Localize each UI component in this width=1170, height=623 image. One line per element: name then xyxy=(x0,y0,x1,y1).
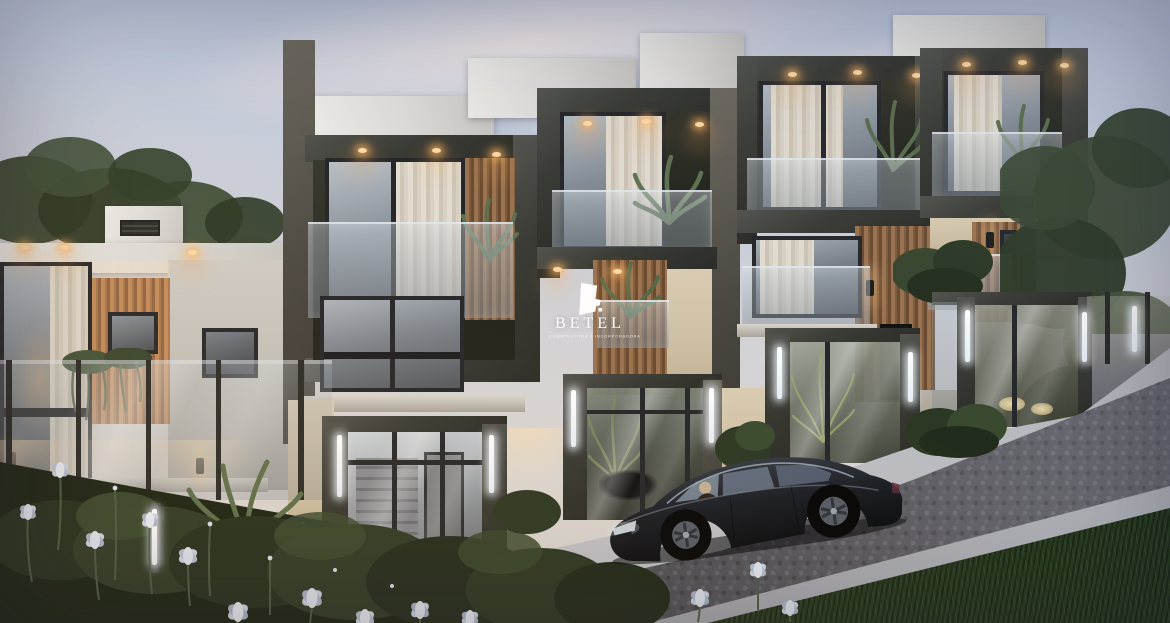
downlight xyxy=(20,245,29,250)
downlight xyxy=(788,72,797,77)
shrub-right-of-gate-3 xyxy=(903,396,1011,458)
led-strip xyxy=(908,352,913,402)
downlight xyxy=(583,121,592,126)
watermark: BETEL CONSTRUTORA E INCORPORADORA xyxy=(543,282,637,346)
downlight xyxy=(695,122,704,127)
led-strip xyxy=(1132,306,1137,352)
iris-flower-bed xyxy=(0,430,680,623)
fence-post xyxy=(1145,292,1150,364)
glass-railing xyxy=(552,190,712,252)
fence-glass-panel xyxy=(1087,296,1170,366)
betel-brand-text: BETEL xyxy=(543,315,637,333)
betel-tagline-text: CONSTRUTORA E INCORPORADORA xyxy=(549,334,631,339)
balcony-glass-railing xyxy=(742,266,870,328)
gate-door-frame xyxy=(1012,305,1017,427)
downlight xyxy=(853,70,862,75)
betel-logo-icon xyxy=(574,282,606,316)
window-mullion xyxy=(390,300,395,388)
downlight xyxy=(358,148,367,153)
downlight xyxy=(553,267,562,272)
downlight xyxy=(613,269,622,274)
dusk-townhouse-render: BETEL CONSTRUTORA E INCORPORADORA xyxy=(0,0,1170,623)
led-strip xyxy=(777,347,782,399)
juliet-rail xyxy=(324,352,460,359)
downlight xyxy=(642,119,651,124)
downlight xyxy=(60,245,69,250)
second-floor-window xyxy=(320,296,464,392)
glass-fence-right xyxy=(1087,292,1170,366)
vent-window xyxy=(120,220,160,236)
downlight xyxy=(492,152,501,157)
balcony-frame-top xyxy=(737,56,935,81)
downlight xyxy=(188,250,197,255)
downlight xyxy=(432,148,441,153)
downlight xyxy=(962,62,971,67)
fence-post xyxy=(1105,292,1110,364)
led-strip xyxy=(965,310,970,362)
